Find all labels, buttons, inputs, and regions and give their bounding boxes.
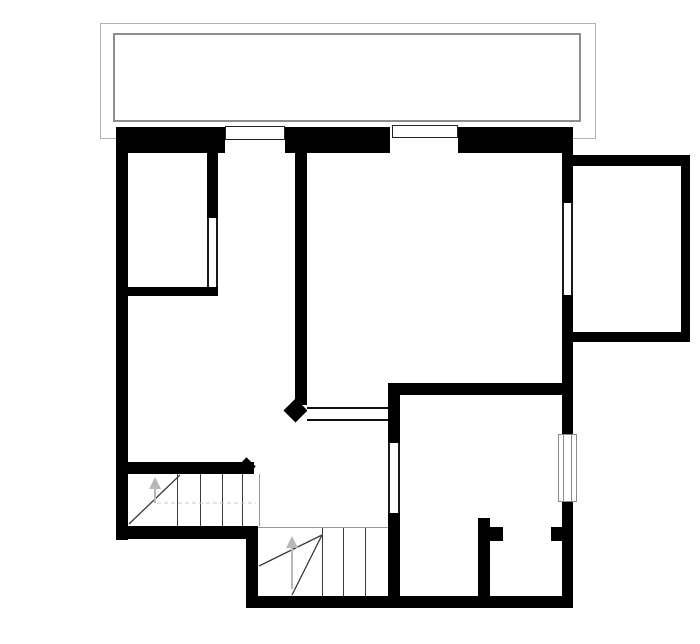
bay-wall-top: [573, 155, 690, 166]
wall-bottom-exterior: [246, 596, 573, 608]
wall-stair-top: [128, 462, 254, 474]
staircase-lower-flight: [258, 527, 388, 596]
window-top-right: [392, 125, 458, 138]
door-opening-upper-left-room: [207, 218, 218, 287]
passage-opening-hall: [307, 407, 388, 421]
wall-right-exterior-lower: [562, 508, 573, 608]
stair-tread-line: [365, 528, 366, 596]
bay-wall-right: [681, 155, 690, 342]
wall-right-exterior-middle: [562, 295, 573, 428]
wall-upper-left-room-horizontal: [128, 287, 218, 296]
closet-wall-vertical: [478, 518, 490, 596]
window-right-wall-panes: [563, 435, 572, 501]
stair-tread-line: [322, 528, 323, 596]
wall-top-exterior: [116, 127, 573, 153]
stair-tread-line: [222, 474, 223, 526]
staircase-upper-flight: [128, 474, 260, 526]
right-window-cap-bottom: [562, 502, 573, 508]
door-opening-lower-right-room: [388, 443, 400, 513]
stair-tread-line: [200, 474, 201, 526]
wall-bottom-left-exterior: [116, 526, 258, 539]
wall-upper-left-room-vertical: [207, 153, 218, 218]
wall-lower-right-room-top: [388, 383, 573, 395]
wall-lower-right-room-left-upper: [388, 395, 400, 443]
stair-tread-line: [177, 474, 178, 526]
bay-wall-bottom: [573, 332, 690, 342]
window-top-left: [225, 126, 285, 140]
stair-edge-line: [259, 474, 260, 526]
closet-door-jamb-left: [490, 527, 503, 541]
wall-right-exterior-upper: [562, 153, 573, 203]
window-right-wall: [558, 434, 577, 502]
door-opening-bay: [562, 203, 573, 295]
wall-left-exterior: [116, 127, 128, 540]
stair-tread-line: [242, 474, 243, 526]
floor-plan: [0, 0, 700, 644]
closet-door-jamb-right: [551, 527, 562, 541]
wall-central-interior: [295, 153, 307, 405]
wall-lower-right-room-left-lower: [388, 513, 400, 596]
stair-tread-line: [343, 528, 344, 596]
balcony-inner-outline: [113, 33, 581, 122]
